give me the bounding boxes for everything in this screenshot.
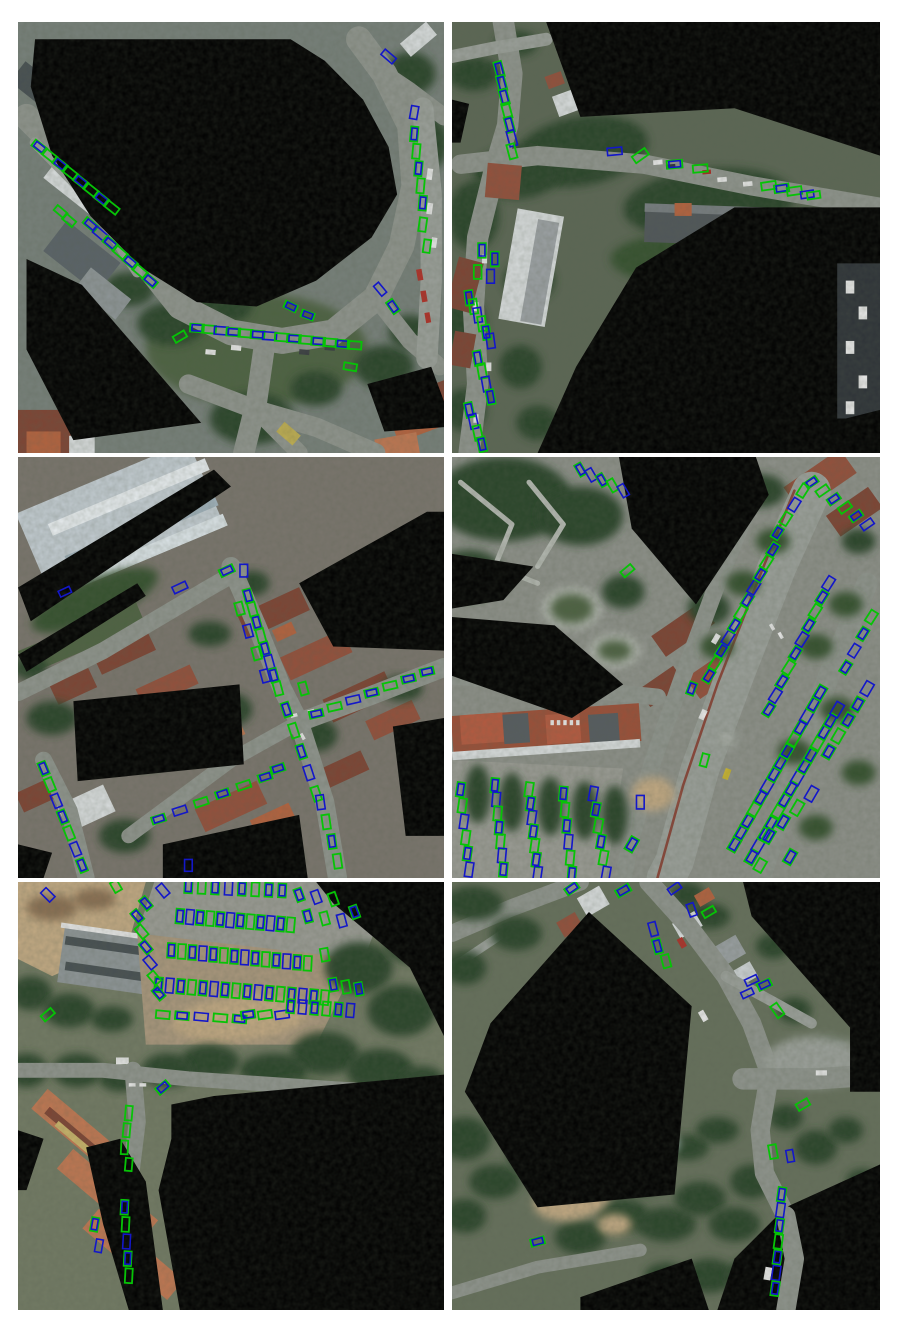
aerial-image-1	[18, 22, 444, 453]
aerial-detection-panel-1	[18, 22, 444, 453]
aerial-image-6	[452, 882, 880, 1310]
aerial-detection-panel-2	[452, 22, 880, 453]
aerial-image-5	[18, 882, 444, 1310]
aerial-detection-panel-6	[452, 882, 880, 1310]
aerial-image-2	[452, 22, 880, 453]
aerial-detection-panel-5	[18, 882, 444, 1310]
figure-page	[0, 0, 897, 1322]
detection-results-grid	[18, 22, 880, 1310]
aerial-detection-panel-3	[18, 457, 444, 878]
aerial-image-4	[452, 457, 880, 878]
aerial-image-3	[18, 457, 444, 878]
aerial-detection-panel-4	[452, 457, 880, 878]
